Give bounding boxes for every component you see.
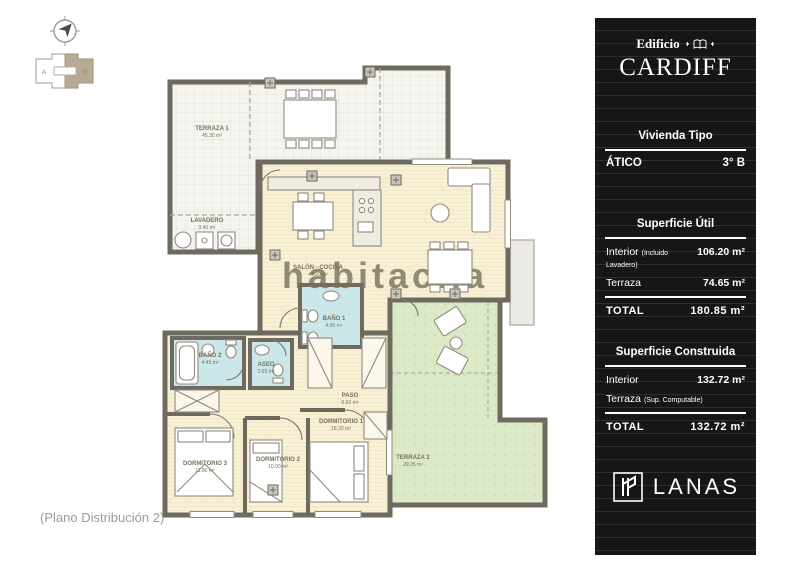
area-lavadero: 3.40 m² [199, 225, 216, 231]
label-terraza-1: TERRAZA 1 [195, 126, 229, 132]
label-dormitorio-2: DORMITORIO 2 [256, 457, 301, 463]
total-value: 180.85 m² [690, 305, 745, 317]
superficie-construida-section: Superficie Construida Interior 132.72 m²… [595, 346, 756, 433]
divider [605, 149, 746, 151]
total-label: TOTAL [606, 305, 644, 317]
label-aseo: ASEO [257, 362, 274, 368]
superficie-util-title: Superficie Útil [595, 218, 756, 230]
total-value: 132.72 m² [690, 421, 745, 433]
row-value: 132.72 m² [697, 374, 745, 386]
vivienda-tipo-title: Vivienda Tipo [595, 130, 756, 142]
area-dormitorio-1: 18.20 m² [331, 426, 351, 432]
area-bano-1: 4.90 m² [326, 323, 343, 329]
row-label: Interior (Incluido Lavadero) [606, 246, 697, 270]
lanas-monogram-icon [611, 470, 645, 504]
keyplan-label-a: A [42, 69, 47, 76]
label-lavadero: LAVADERO [191, 218, 224, 224]
info-panel: Edificio CARDIFF Vivienda Tipo ÁTICO 3° … [595, 18, 756, 555]
building-label: Edificio [636, 36, 679, 52]
agency-logo: LANAS [595, 470, 756, 504]
tipo-unit: 3° B [723, 157, 746, 169]
row-value: 106.20 m² [697, 246, 745, 258]
area-paso: 6.60 m² [342, 400, 359, 406]
area-aseo: 2.65 m² [258, 369, 275, 375]
label-terraza-2: TERRAZA 2 [396, 455, 430, 461]
superficie-construida-title: Superficie Construida [595, 346, 756, 358]
building-brand: Edificio CARDIFF [595, 36, 756, 82]
area-bano-2: 4.45 m² [202, 360, 219, 366]
total-label: TOTAL [606, 421, 644, 433]
divider [605, 296, 746, 298]
area-terraza-1: 45.30 m² [202, 133, 222, 139]
row-label: Terraza (Sup. Computable) [606, 393, 703, 405]
room-terraza-2 [390, 300, 545, 505]
row-value: 74.65 m² [703, 277, 745, 289]
superficie-util-section: Superficie Útil Interior (Incluido Lavad… [595, 218, 756, 317]
building-name: CARDIFF [595, 54, 756, 82]
row-label: Interior [606, 374, 639, 386]
divider [605, 365, 746, 367]
tipo-atico: ÁTICO [606, 157, 642, 169]
area-salon-cocina: 44.20 m² [308, 272, 328, 278]
area-dormitorio-2: 10.00 m² [268, 464, 288, 470]
agency-name: LANAS [653, 474, 740, 500]
floor-plan: habitaclia [150, 50, 590, 520]
plan-caption: (Plano Distribución 2) [40, 510, 164, 525]
plan-sheet: A B [0, 0, 800, 565]
row-label: Terraza [606, 277, 641, 289]
side-strip [510, 240, 534, 325]
area-dormitorio-3: 11.80 m² [195, 468, 215, 474]
label-salon-cocina: SALÓN - COCINA [293, 263, 344, 271]
keyplan: A B [32, 50, 98, 92]
keyplan-label-b: B [83, 69, 87, 76]
divider [605, 412, 746, 414]
area-terraza-2: 29.35 m² [403, 462, 423, 468]
label-dormitorio-1: DORMITORIO 1 [319, 419, 364, 425]
label-bano-2: BAÑO 2 [199, 352, 222, 359]
compass-icon [46, 12, 84, 50]
label-bano-1: BAÑO 1 [323, 315, 346, 322]
label-dormitorio-3: DORMITORIO 3 [183, 461, 228, 467]
edificio-emblem-icon [685, 38, 715, 51]
label-paso: PASO [342, 393, 359, 399]
vivienda-tipo-section: Vivienda Tipo ÁTICO 3° B [595, 130, 756, 169]
divider [605, 237, 746, 239]
